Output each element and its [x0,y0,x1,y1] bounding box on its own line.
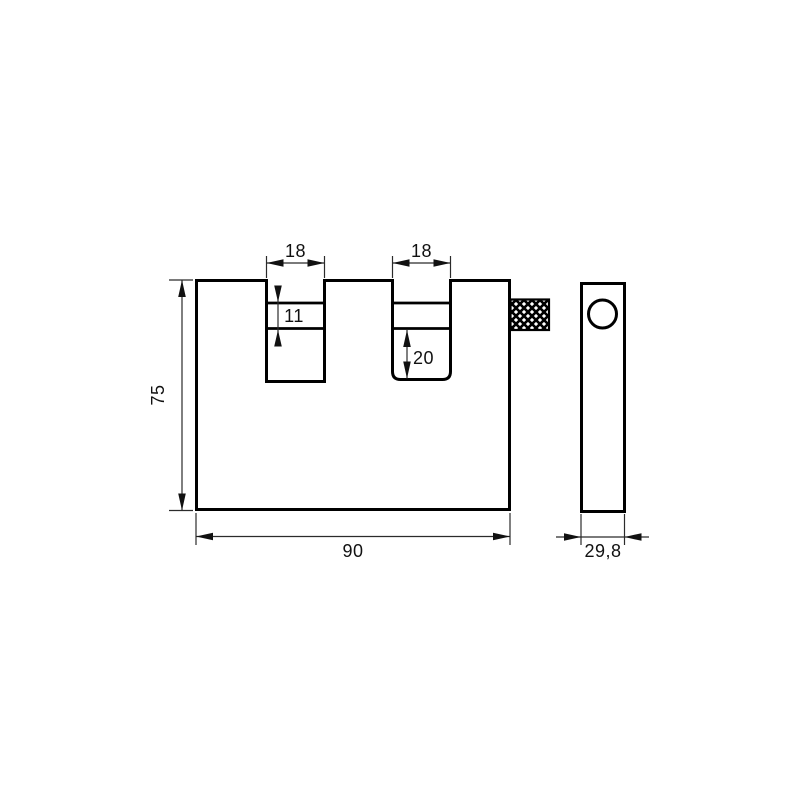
dim-label-right-slot-width: 18 [411,241,432,261]
dim-body-width: 90 [196,513,510,561]
dim-arrow-down [274,286,282,303]
dim-arrow-up [274,330,282,347]
dim-arrow-down [403,362,411,379]
dim-left-slot-band-height: 11 [274,286,304,347]
shackle-hole [589,300,617,328]
front-view-outline [197,281,510,510]
dim-arrow-left [267,259,284,267]
dim-arrow-left [196,533,213,541]
dim-arrow-left [393,259,410,267]
knurled-wheel [511,300,550,331]
dim-arrow-left-inward [625,533,642,541]
dim-label-body-width: 90 [342,541,363,561]
dim-arrow-right [308,259,325,267]
technical-drawing-canvas: 18 18 11 20 [0,0,800,800]
dim-label-left-slot-width: 18 [285,241,306,261]
dim-left-slot-width: 18 [267,241,325,278]
dim-label-slot-depth: 20 [413,348,434,368]
dim-arrow-down [178,494,186,511]
dim-arrow-right [493,533,510,541]
dim-label-band-height: 11 [284,306,304,326]
drawing-svg: 18 18 11 20 [0,0,800,800]
dim-side-width: 29,8 [556,514,649,561]
dim-arrow-up [178,280,186,297]
dim-label-body-height: 75 [148,384,168,405]
dim-arrow-right-inward [564,533,581,541]
dim-right-slot-depth: 20 [403,330,434,379]
front-view [197,281,550,510]
dim-body-height: 75 [148,280,193,511]
dim-arrow-up [403,330,411,347]
dim-right-slot-width: 18 [393,241,451,278]
dim-arrow-right [434,259,451,267]
dim-label-side-width: 29,8 [584,541,621,561]
side-view [582,284,625,512]
